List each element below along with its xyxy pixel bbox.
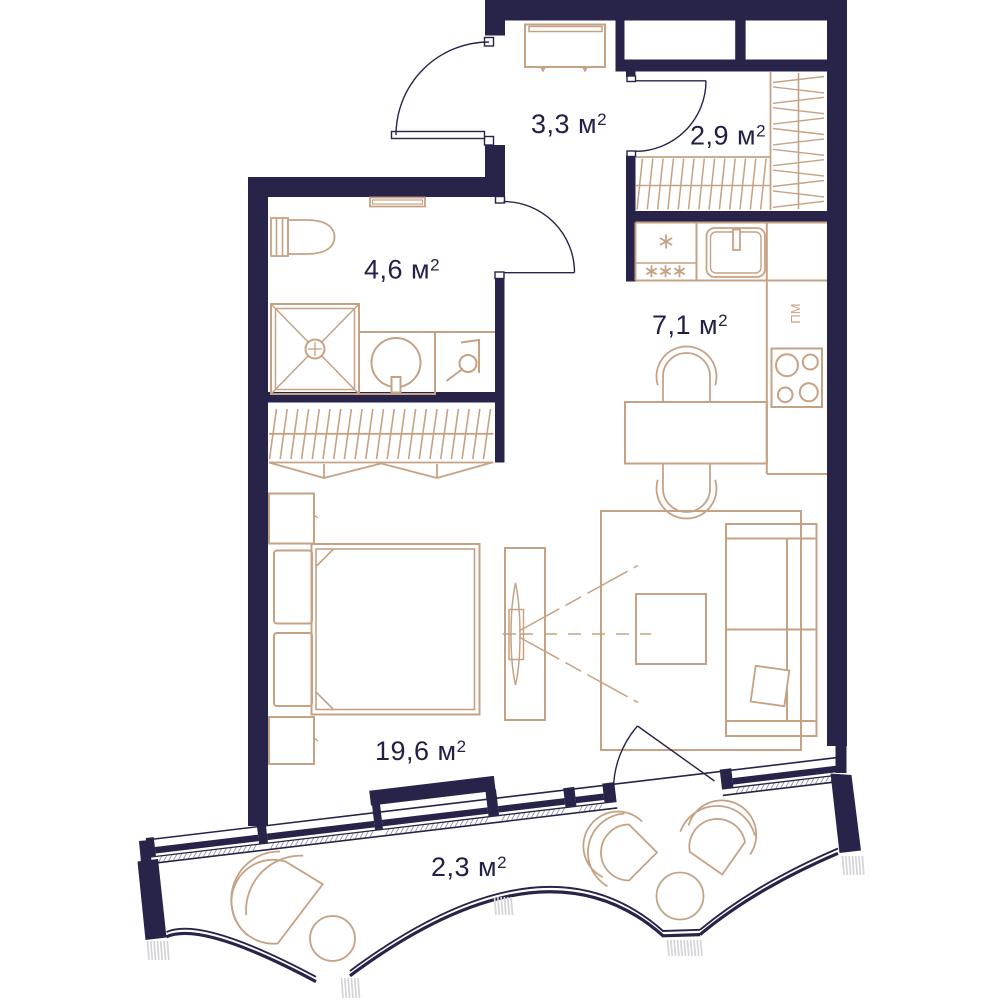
svg-text:ПМ: ПМ	[788, 303, 803, 323]
svg-text:2,9 м2: 2,9 м2	[690, 121, 766, 151]
svg-text:7,1 м2: 7,1 м2	[652, 310, 728, 340]
svg-text:19,6 м2: 19,6 м2	[375, 736, 467, 766]
svg-text:2,3 м2: 2,3 м2	[431, 852, 507, 882]
svg-text:4,6 м2: 4,6 м2	[364, 255, 440, 285]
svg-text:3,3 м2: 3,3 м2	[531, 109, 607, 139]
